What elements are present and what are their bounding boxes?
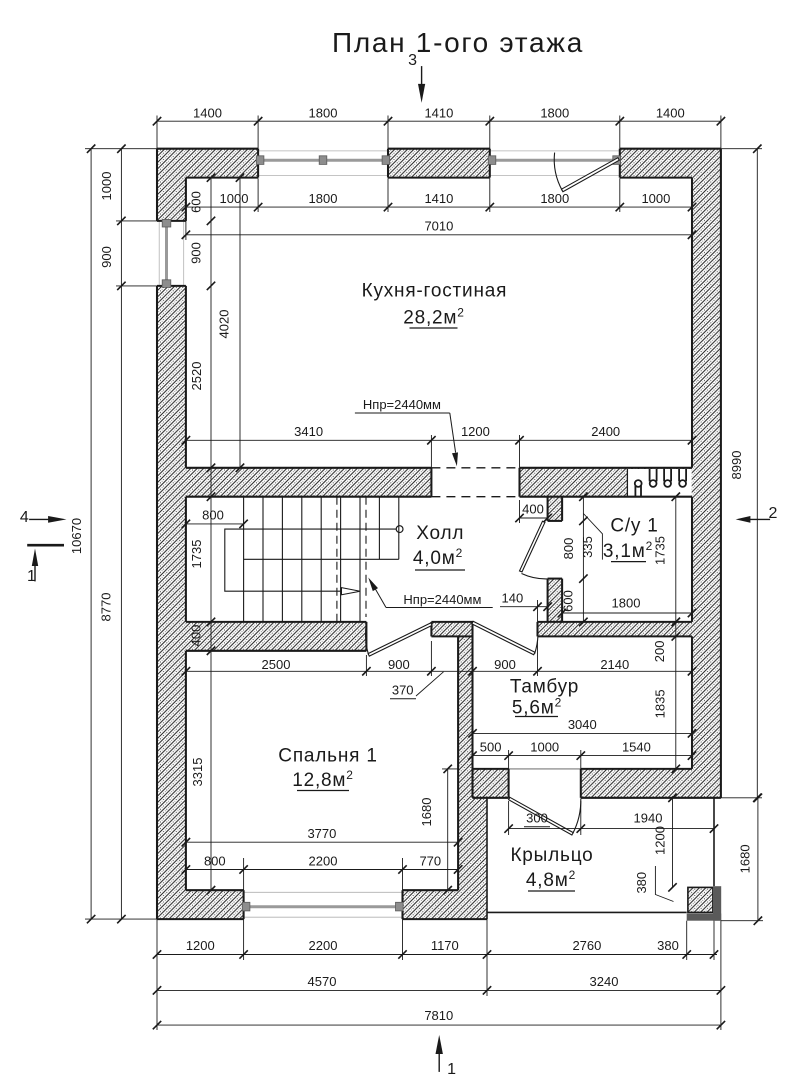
svg-text:300: 300 [526,811,548,826]
svg-text:3240: 3240 [590,974,619,989]
svg-text:900: 900 [494,657,516,672]
svg-text:План 1-ого этажа: План 1-ого этажа [332,27,584,58]
svg-text:140: 140 [502,591,524,606]
svg-text:900: 900 [388,657,410,672]
svg-text:10670: 10670 [69,518,84,554]
svg-text:1400: 1400 [656,105,685,120]
svg-text:Тамбур: Тамбур [510,677,579,698]
svg-text:8990: 8990 [729,451,744,480]
svg-text:1000: 1000 [641,191,670,206]
svg-text:1410: 1410 [424,191,453,206]
svg-text:4570: 4570 [308,974,337,989]
svg-text:8770: 8770 [99,593,114,622]
svg-text:7810: 7810 [424,1008,453,1023]
svg-text:1200: 1200 [186,938,215,953]
svg-text:2140: 2140 [600,657,629,672]
svg-text:4020: 4020 [217,310,232,339]
svg-text:3315: 3315 [190,758,205,787]
svg-text:4: 4 [20,509,29,526]
svg-text:370: 370 [392,683,414,698]
svg-text:1680: 1680 [419,798,434,827]
svg-text:Холл: Холл [416,523,464,544]
svg-text:1000: 1000 [530,739,559,754]
svg-text:28,2м2: 28,2м2 [403,306,465,329]
svg-text:2760: 2760 [572,938,601,953]
svg-text:400: 400 [189,625,204,647]
svg-text:335: 335 [580,536,595,558]
svg-text:3040: 3040 [568,717,597,732]
svg-text:Кухня-гостиная: Кухня-гостиная [362,281,508,302]
svg-text:800: 800 [561,538,576,560]
svg-text:1835: 1835 [653,689,668,718]
svg-text:Крыльцо: Крыльцо [510,845,593,866]
svg-text:770: 770 [419,853,441,868]
svg-text:1: 1 [447,1061,456,1078]
svg-text:1800: 1800 [540,191,569,206]
svg-text:3770: 3770 [307,826,336,841]
svg-text:4,8м2: 4,8м2 [526,868,576,891]
svg-text:1735: 1735 [189,540,204,569]
svg-text:1400: 1400 [193,105,222,120]
svg-text:7010: 7010 [424,219,453,234]
svg-text:900: 900 [99,246,114,268]
svg-text:380: 380 [657,938,679,953]
svg-text:5,6м2: 5,6м2 [512,696,562,719]
svg-text:2200: 2200 [309,853,338,868]
svg-text:1540: 1540 [622,739,651,754]
svg-text:380: 380 [634,872,649,894]
svg-text:4,0м2: 4,0м2 [413,546,463,569]
svg-text:800: 800 [202,508,224,523]
svg-text:600: 600 [561,590,576,612]
svg-text:С/у 1: С/у 1 [610,516,658,537]
svg-text:2520: 2520 [189,362,204,391]
svg-text:600: 600 [189,191,204,213]
svg-text:Hпр=2440мм: Hпр=2440мм [363,397,441,412]
svg-text:900: 900 [189,242,204,264]
svg-text:1800: 1800 [540,105,569,120]
svg-text:1800: 1800 [309,105,338,120]
svg-text:1200: 1200 [653,826,668,855]
svg-text:1170: 1170 [431,938,459,953]
svg-text:2200: 2200 [309,938,338,953]
svg-text:3,1м2: 3,1м2 [603,539,653,562]
svg-text:1200: 1200 [461,424,490,439]
svg-text:800: 800 [204,853,226,868]
svg-text:1410: 1410 [424,105,453,120]
svg-text:Спальня 1: Спальня 1 [278,746,377,767]
svg-text:1: 1 [27,568,36,585]
svg-text:500: 500 [480,739,502,754]
svg-text:12,8м2: 12,8м2 [292,768,354,791]
svg-text:1000: 1000 [99,172,114,201]
svg-text:1735: 1735 [652,536,667,565]
svg-text:400: 400 [522,502,544,517]
svg-text:Hпр=2440мм: Hпр=2440мм [403,592,481,607]
svg-text:1680: 1680 [738,844,753,873]
svg-text:1800: 1800 [309,191,338,206]
svg-text:200: 200 [652,641,667,663]
svg-text:2500: 2500 [262,657,291,672]
svg-text:2400: 2400 [591,424,620,439]
svg-text:1940: 1940 [634,811,663,826]
svg-text:1000: 1000 [220,191,249,206]
svg-text:1800: 1800 [612,596,641,611]
svg-text:3410: 3410 [294,424,323,439]
